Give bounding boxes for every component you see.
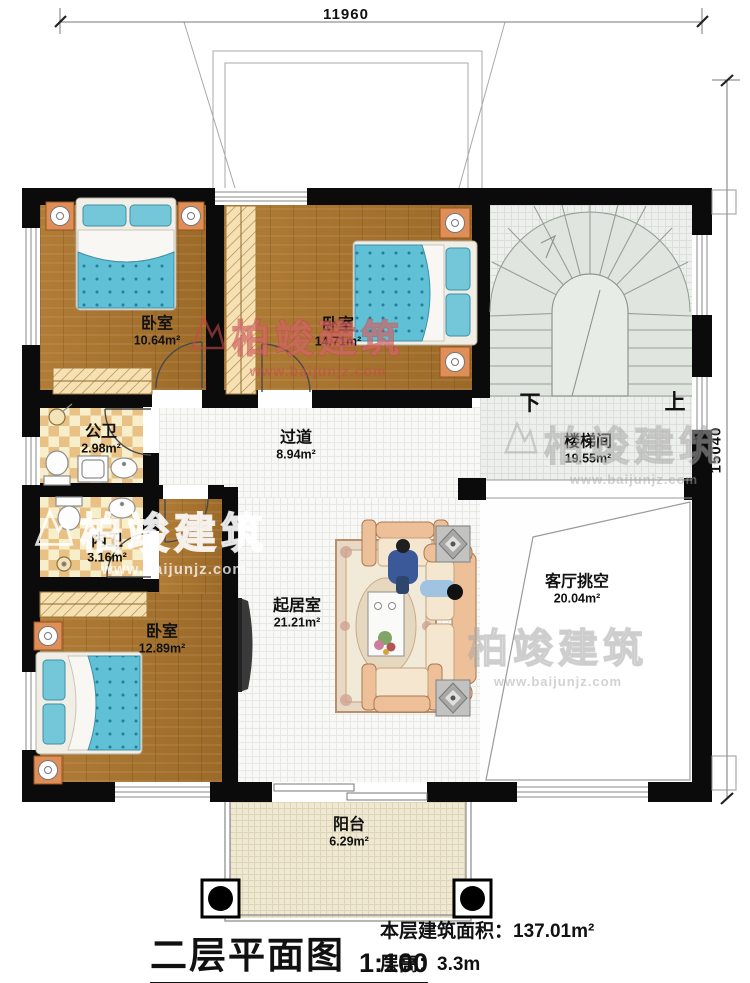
plan-info-block: 本层建筑面积：137.01m² 层高：3.3m bbox=[380, 916, 594, 976]
floor-area-value: 137.01m² bbox=[513, 921, 594, 942]
tv bbox=[238, 598, 253, 692]
floor-plan-page: 11960 15040 卧室 10.64m² 卧室 14.71m² 楼梯间 19… bbox=[0, 0, 750, 983]
floor-height-label: 层高： bbox=[380, 954, 437, 975]
canopy-outline bbox=[184, 22, 505, 188]
floor-height-line: 层高：3.3m bbox=[380, 949, 594, 976]
floor-area-line: 本层建筑面积：137.01m² bbox=[380, 916, 594, 943]
dimension-right: 15040 bbox=[708, 427, 725, 474]
floorplan-drawing bbox=[0, 0, 750, 983]
coffee-table bbox=[368, 592, 404, 656]
bed-2 bbox=[353, 241, 477, 345]
floor-height-value: 3.3m bbox=[437, 954, 480, 975]
balcony-columns bbox=[202, 880, 491, 917]
floor-area-label: 本层建筑面积： bbox=[380, 921, 513, 942]
dimension-top: 11960 bbox=[323, 6, 369, 23]
exterior-pads bbox=[712, 190, 736, 790]
balcony-railing bbox=[225, 802, 471, 921]
plan-title: 二层平面图 bbox=[150, 925, 345, 979]
bed-1 bbox=[76, 198, 176, 310]
bed-3 bbox=[36, 652, 142, 754]
staircase bbox=[486, 205, 692, 498]
stair-down-label: 下 bbox=[520, 387, 541, 417]
void-outline bbox=[486, 502, 690, 780]
stair-up-label: 上 bbox=[665, 386, 686, 416]
